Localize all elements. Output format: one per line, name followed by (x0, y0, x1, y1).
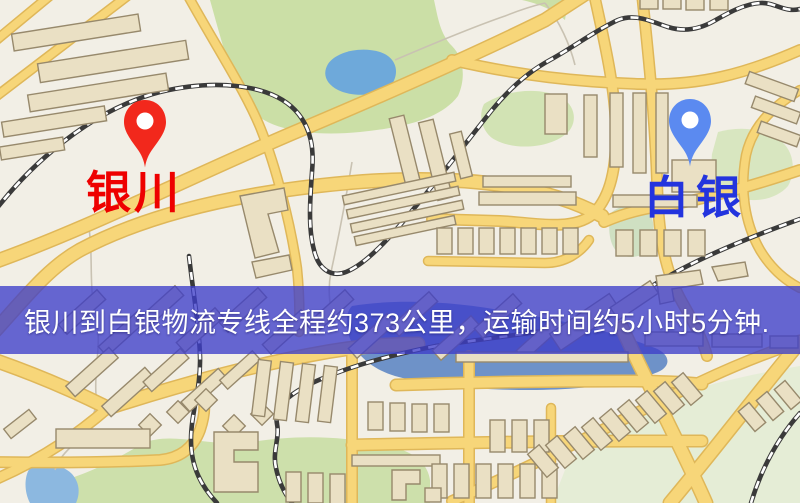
origin-city-label: 银川 (86, 170, 182, 215)
destination-city-label: 白银 (644, 175, 748, 220)
origin-pin (122, 99, 168, 169)
route-info-banner: 银川到白银物流专线全程约373公里，运输时间约5小时5分钟. (0, 286, 800, 354)
bottom-left-lake (26, 465, 79, 503)
route-info-text: 银川到白银物流专线全程约373公里，运输时间约5小时5分钟. (0, 301, 770, 340)
pin-hole (682, 112, 699, 129)
map-screenshot: 银川 白银 银川到白银物流专线全程约373公里，运输时间约5小时5分钟. (0, 0, 800, 503)
pin-hole (137, 113, 154, 130)
destination-pin (667, 98, 713, 168)
red-pin-icon (124, 100, 166, 168)
map-canvas (0, 0, 800, 503)
blue-pin-icon (669, 99, 711, 167)
